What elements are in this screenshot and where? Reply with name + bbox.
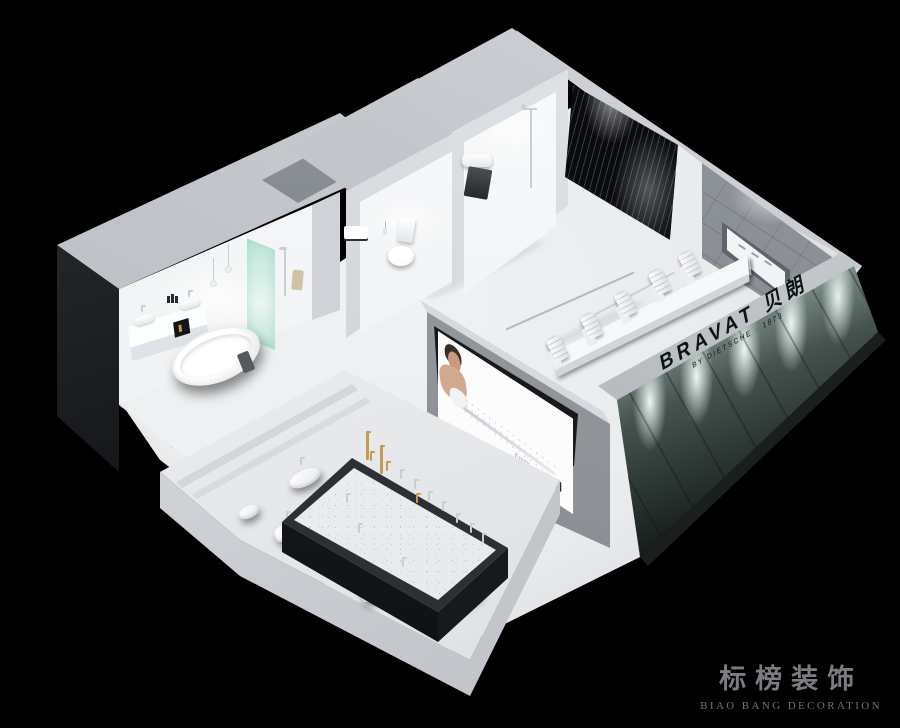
toiletry-bottle	[171, 294, 174, 303]
chrome-faucet	[482, 534, 484, 543]
showroom-render: Enjoy BRAVAT 贝朗 BY DIETSCHE · 1873	[0, 0, 900, 728]
watermark-english: BIAO BANG DECORATION	[700, 700, 882, 712]
toilet-room-vanity	[344, 226, 368, 239]
basin-faucet	[300, 458, 302, 465]
toiletry-bottle	[167, 296, 170, 303]
gold-shower-column	[366, 432, 369, 460]
wall-faucet	[188, 291, 190, 297]
chrome-faucet	[456, 514, 458, 523]
gold-faucet	[370, 452, 372, 461]
shower-fixture	[284, 250, 286, 296]
towel	[291, 270, 304, 291]
pendant-light	[210, 280, 217, 287]
shower-room-basin	[462, 154, 492, 167]
chrome-faucet	[442, 502, 444, 511]
wall-faucet	[141, 306, 143, 312]
watermark: 标榜装饰 BIAO BANG DECORATION	[700, 657, 882, 712]
chrome-faucet	[358, 524, 360, 533]
chrome-faucet	[470, 524, 472, 533]
watermark-chinese: 标榜装饰	[700, 657, 882, 696]
chrome-faucet	[428, 492, 430, 501]
chrome-faucet	[414, 480, 416, 489]
gold-faucet	[386, 462, 388, 471]
chrome-faucet	[402, 558, 404, 567]
vanity-niche	[173, 318, 190, 338]
toiletry-bottle	[175, 296, 178, 303]
toilet-tank	[396, 217, 415, 243]
shower-head	[521, 104, 526, 109]
shower-room-cabinet	[464, 166, 493, 200]
vanity-display-item	[178, 324, 182, 332]
toilet-brush	[383, 228, 387, 235]
chrome-faucet	[400, 470, 402, 479]
gold-faucet	[416, 494, 418, 503]
shower-column	[530, 110, 532, 188]
toilet-bowl	[388, 246, 414, 266]
chrome-faucet	[346, 494, 348, 503]
shower-head	[279, 247, 287, 250]
pendant-light	[225, 266, 232, 273]
gold-shower-column	[380, 446, 383, 474]
